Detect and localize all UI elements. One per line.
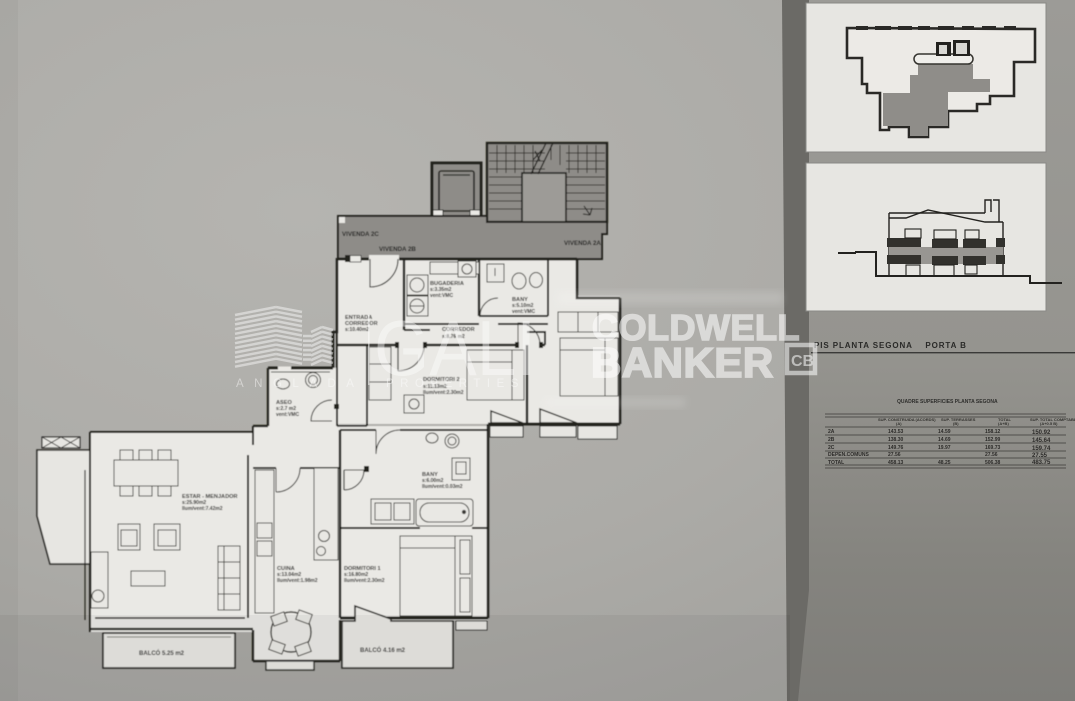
svg-text:CB: CB <box>791 353 814 370</box>
svg-text:143.53: 143.53 <box>888 429 904 435</box>
svg-text:vent:VMC: vent:VMC <box>276 412 299 418</box>
svg-text:(B): (B) <box>953 421 959 426</box>
svg-text:s:10.40m2: s:10.40m2 <box>345 327 369 333</box>
svg-text:27.56: 27.56 <box>888 452 901 458</box>
svg-text:27.55: 27.55 <box>1032 453 1048 459</box>
svg-text:VIVENDA 2B: VIVENDA 2B <box>379 246 416 253</box>
svg-text:TOTAL: TOTAL <box>828 460 844 466</box>
svg-text:ANGLADA: ANGLADA <box>236 378 364 390</box>
svg-text:169.73: 169.73 <box>985 445 1001 451</box>
svg-text:llum/vent:2.30m2: llum/vent:2.30m2 <box>344 578 385 584</box>
svg-text:138.30: 138.30 <box>888 437 904 443</box>
svg-text:14.69: 14.69 <box>938 437 951 443</box>
svg-text:152.99: 152.99 <box>985 437 1001 443</box>
svg-text:149.76: 149.76 <box>888 445 904 451</box>
svg-text:llum/vent:1.98m2: llum/vent:1.98m2 <box>277 578 318 584</box>
svg-text:27.56: 27.56 <box>985 452 998 458</box>
svg-text:llum/vent:0.03m2: llum/vent:0.03m2 <box>422 484 463 490</box>
svg-text:DEPEN.COMUNS: DEPEN.COMUNS <box>828 452 870 458</box>
svg-text:158.12: 158.12 <box>985 429 1001 435</box>
svg-text:150.92: 150.92 <box>1032 430 1051 436</box>
svg-text:506.38: 506.38 <box>985 460 1001 466</box>
svg-text:PROPERTIES: PROPERTIES <box>386 378 525 390</box>
svg-text:145.64: 145.64 <box>1032 438 1051 444</box>
svg-text:48.25: 48.25 <box>938 460 951 466</box>
svg-text:vent:VMC: vent:VMC <box>430 293 453 299</box>
svg-text:(A+0.5 B): (A+0.5 B) <box>1040 421 1058 426</box>
svg-text:159.74: 159.74 <box>1032 446 1051 452</box>
svg-text:2A: 2A <box>828 429 835 435</box>
svg-text:483.75: 483.75 <box>1032 460 1051 466</box>
svg-text:458.13: 458.13 <box>888 460 904 466</box>
svg-text:VIVENDA 2A: VIVENDA 2A <box>564 240 601 247</box>
svg-text:QUADRE SUPERFICIES PLANTA SEGO: QUADRE SUPERFICIES PLANTA SEGONA <box>897 399 998 405</box>
svg-text:BANKER: BANKER <box>591 339 774 386</box>
svg-text:19.97: 19.97 <box>938 445 951 451</box>
svg-text:2B: 2B <box>828 437 835 443</box>
svg-text:VIVENDA 2C: VIVENDA 2C <box>342 231 379 238</box>
svg-text:SUP. CONSTRUIDA (ACORDS): SUP. CONSTRUIDA (ACORDS) <box>878 417 936 422</box>
svg-text:2C: 2C <box>828 445 835 451</box>
svg-text:(A+B): (A+B) <box>998 421 1009 426</box>
svg-text:PIS PLANTA SEGONA PORTA B: PIS PLANTA SEGONA PORTA B <box>814 341 967 350</box>
svg-text:llum/vent:7.42m2: llum/vent:7.42m2 <box>182 506 223 512</box>
svg-text:14.59: 14.59 <box>938 429 951 435</box>
svg-text:(A): (A) <box>896 421 902 426</box>
